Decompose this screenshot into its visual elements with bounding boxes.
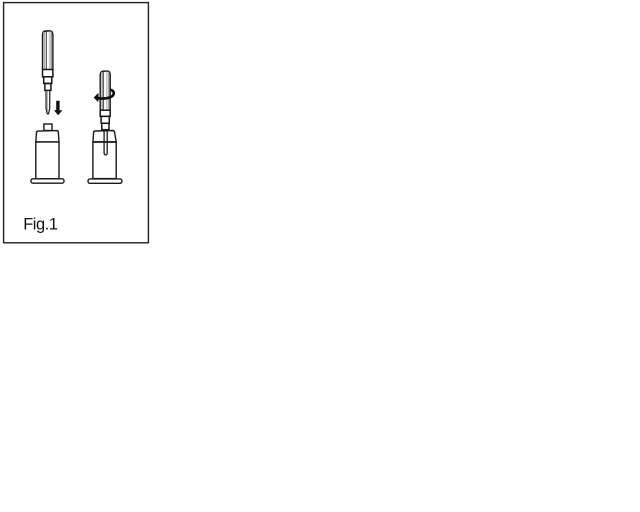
svg-text:Fig.1: Fig.1 — [23, 216, 58, 234]
